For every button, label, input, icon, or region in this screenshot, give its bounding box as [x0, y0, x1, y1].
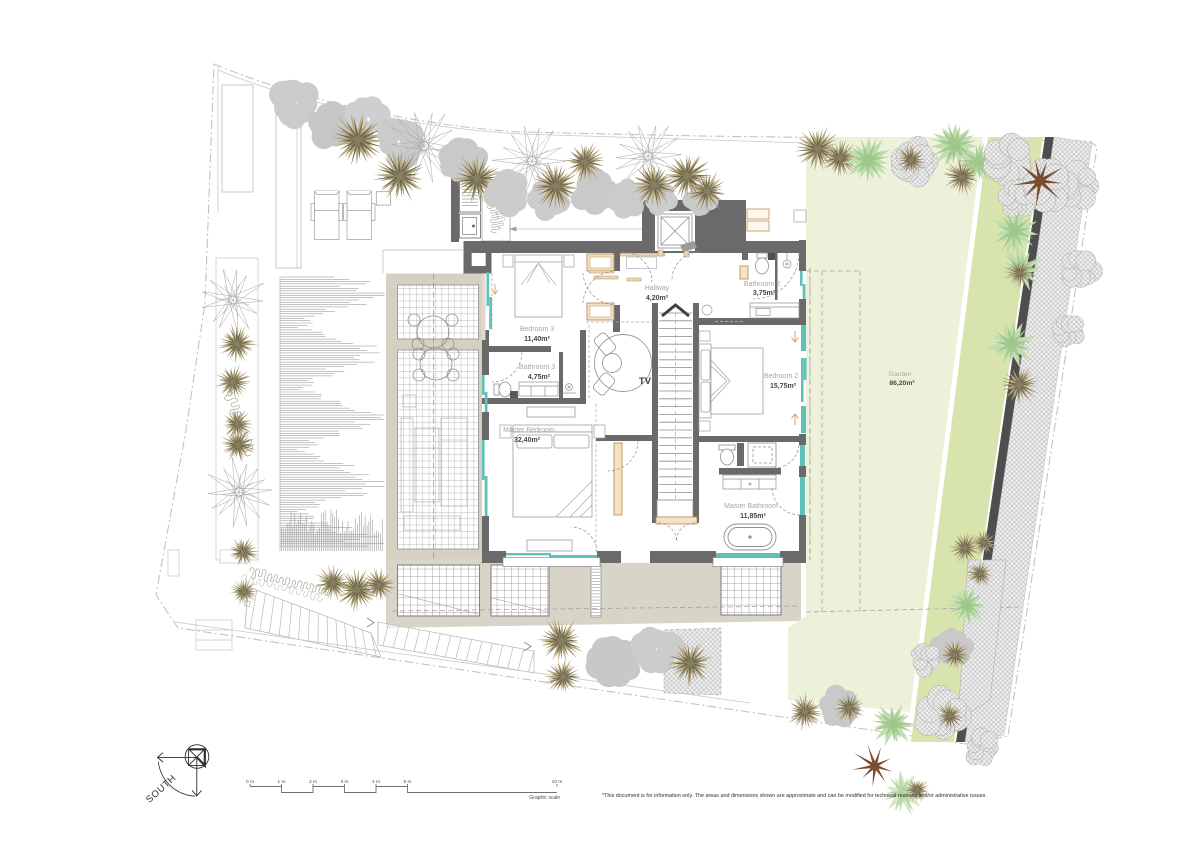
svg-text:11,85m²: 11,85m² — [740, 513, 766, 520]
svg-text:4,20m²: 4,20m² — [646, 295, 669, 302]
svg-text:Bedroom 2: Bedroom 2 — [764, 373, 798, 380]
svg-text:Garden: Garden — [889, 371, 912, 378]
svg-text:Bedroom 3: Bedroom 3 — [520, 326, 554, 333]
svg-text:5 m: 5 m — [404, 779, 412, 785]
svg-text:Master Bathroom: Master Bathroom — [724, 503, 778, 510]
svg-text:4 m: 4 m — [372, 779, 380, 785]
svg-text:Graphic scale: Graphic scale — [529, 795, 560, 801]
svg-text:86,20m²: 86,20m² — [889, 380, 915, 387]
svg-text:32,40m²: 32,40m² — [514, 437, 541, 444]
svg-text:3,75m²: 3,75m² — [753, 290, 776, 297]
svg-text:*This document is for informat: *This document is for information only. … — [602, 793, 987, 799]
svg-text:0 m: 0 m — [246, 779, 254, 785]
svg-text:1 m: 1 m — [278, 779, 286, 785]
svg-text:Master Bedroom: Master Bedroom — [503, 427, 555, 434]
svg-text:Hallway: Hallway — [645, 285, 670, 292]
svg-text:11,40m²: 11,40m² — [524, 336, 550, 343]
svg-text:3 m: 3 m — [341, 779, 349, 785]
svg-text:15,75m²: 15,75m² — [770, 383, 797, 390]
svg-text:Bathroom 2: Bathroom 2 — [744, 281, 780, 288]
svg-text:2 m: 2 m — [309, 779, 317, 785]
svg-text:Bathroom 3: Bathroom 3 — [519, 364, 555, 371]
svg-text:4,75m²: 4,75m² — [528, 374, 551, 381]
svg-text:SOUTH: SOUTH — [144, 773, 179, 806]
svg-text:TV: TV — [639, 376, 652, 387]
svg-text:10 m: 10 m — [552, 779, 563, 785]
